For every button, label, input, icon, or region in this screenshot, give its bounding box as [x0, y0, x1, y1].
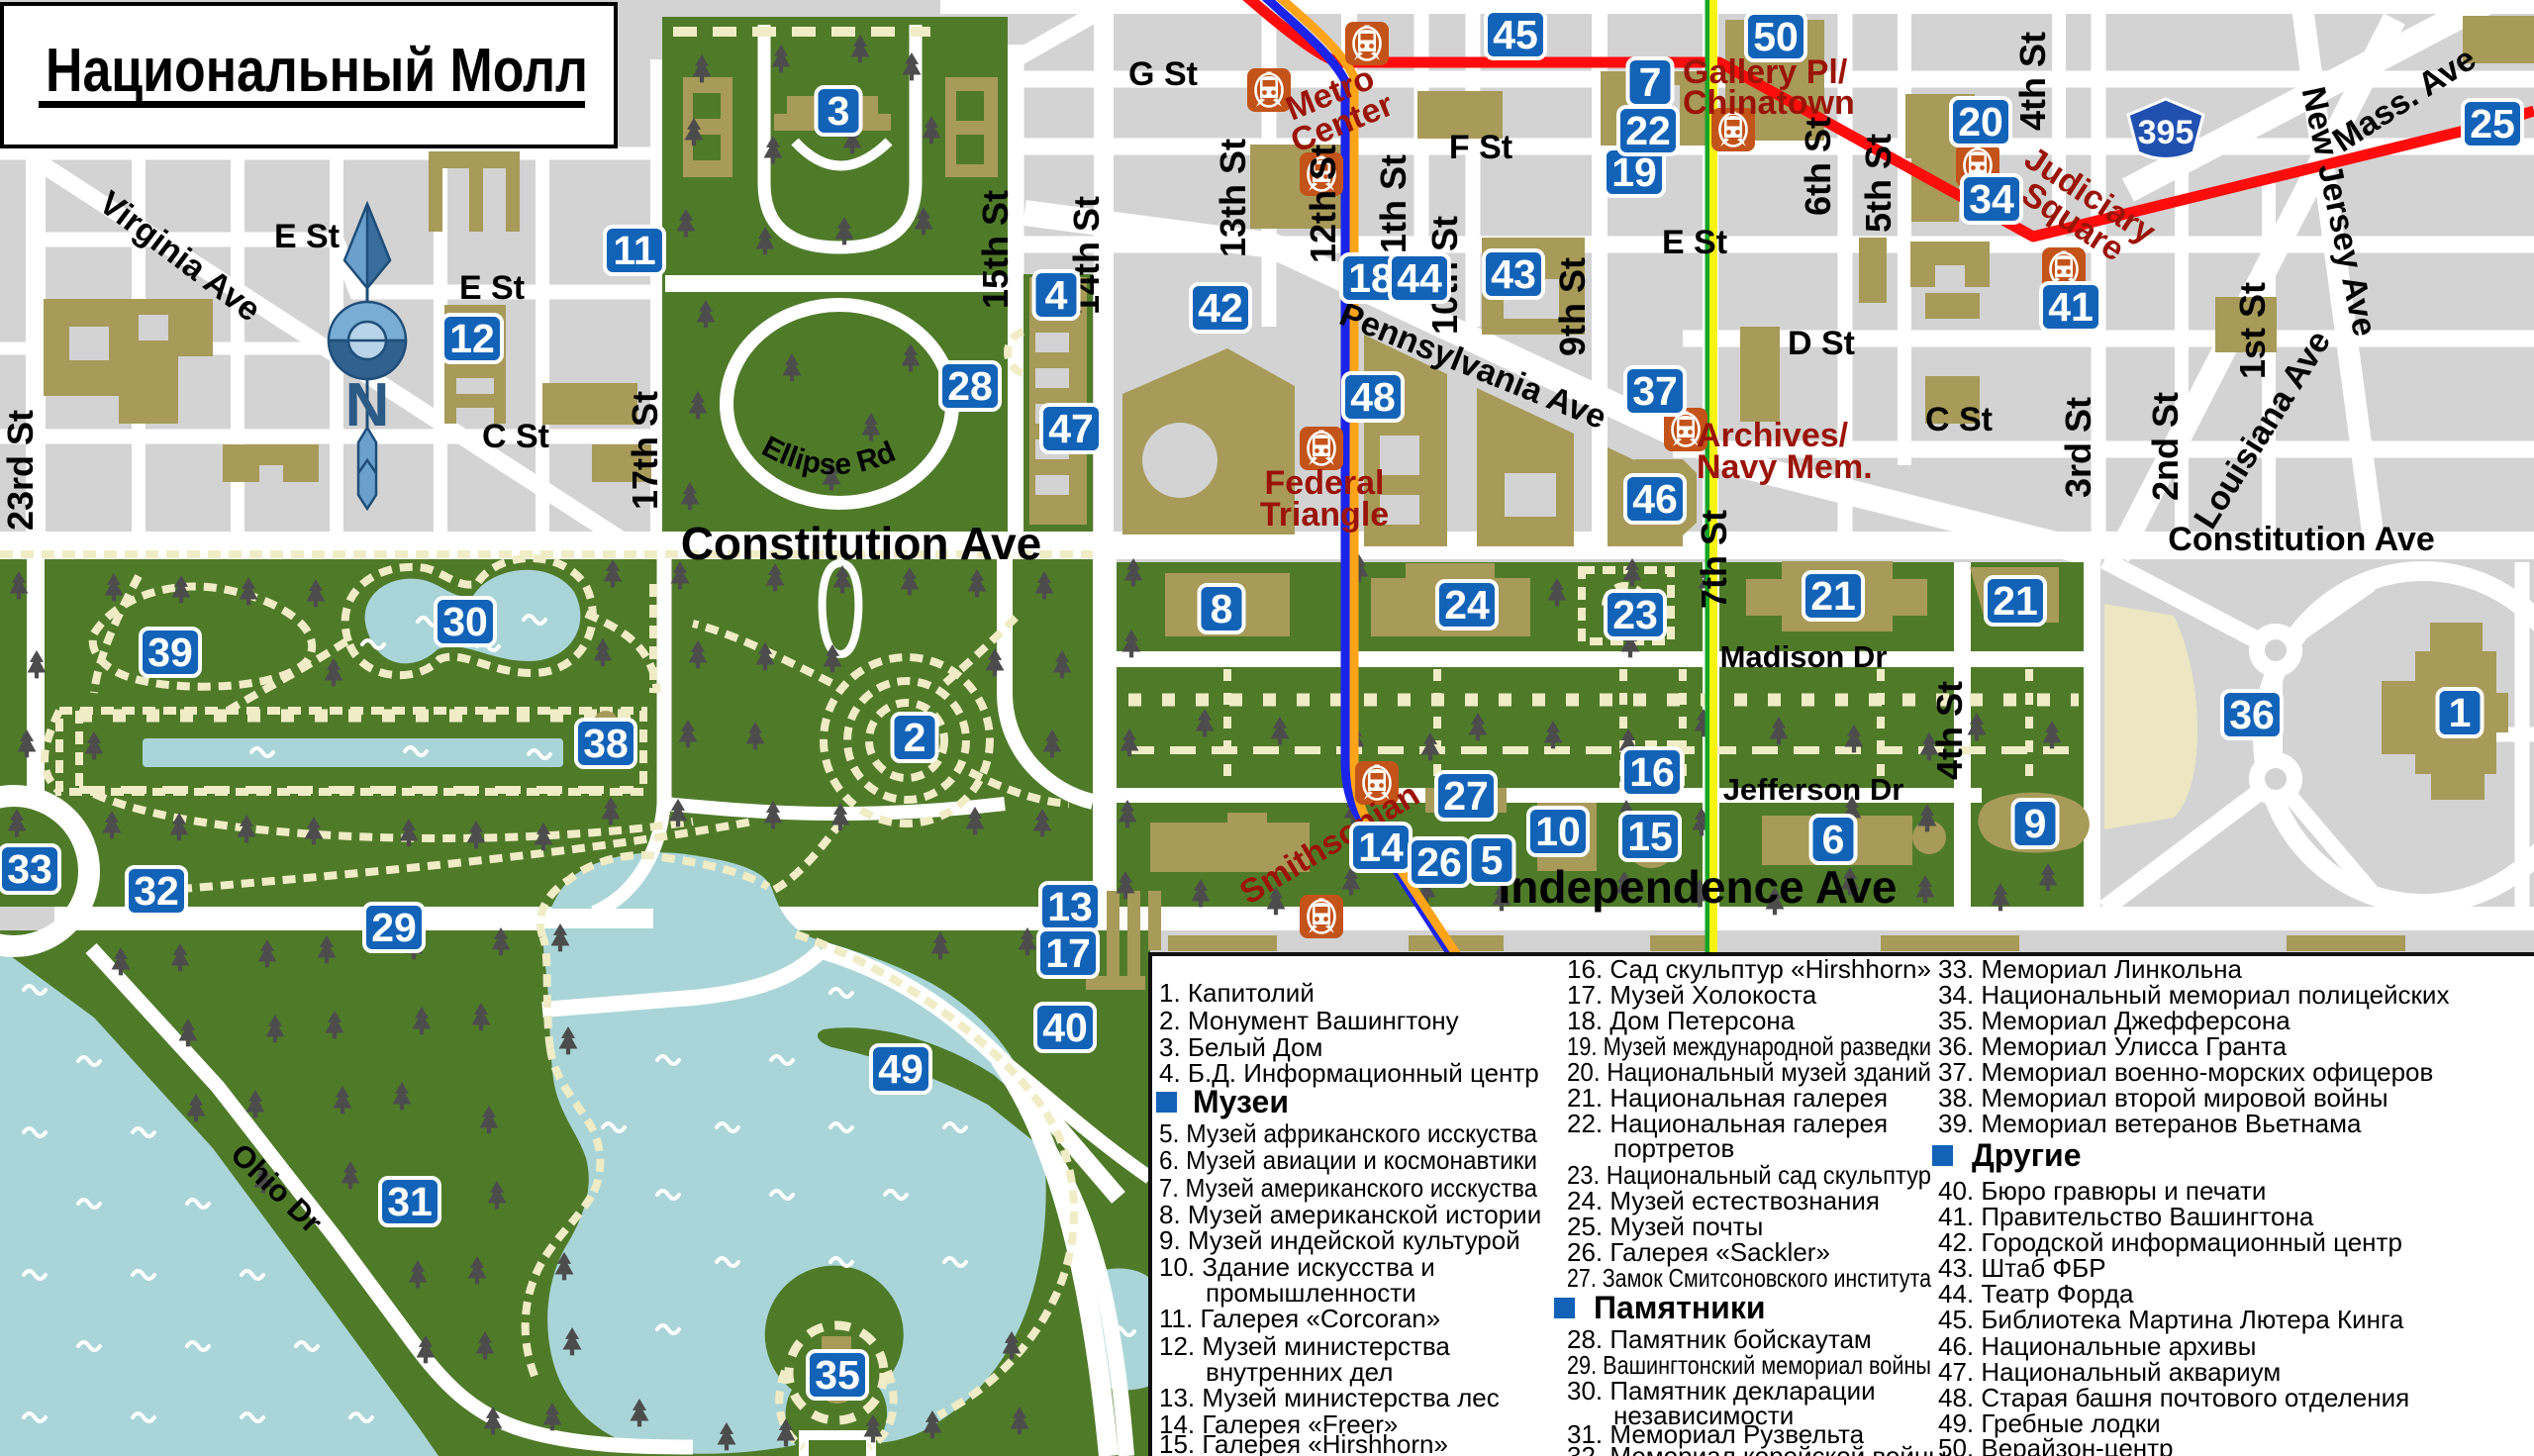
svg-text:Chinatown: Chinatown: [1683, 84, 1855, 122]
svg-text:7: 7: [1639, 59, 1662, 105]
svg-text:6. Музей авиации и космонавтик: 6. Музей авиации и космонавтики: [1159, 1145, 1537, 1175]
svg-text:C St: C St: [1925, 401, 1993, 438]
svg-text:12th St: 12th St: [1303, 145, 1343, 263]
svg-text:Национальный Молл: Национальный Молл: [46, 37, 588, 105]
svg-text:Constitution Ave: Constitution Ave: [681, 518, 1042, 569]
svg-text:Памятники: Памятники: [1594, 1290, 1766, 1325]
svg-text:11. Галерея «Corcoran»: 11. Галерея «Corcoran»: [1159, 1304, 1440, 1333]
svg-text:G St: G St: [1128, 55, 1198, 93]
svg-text:9: 9: [2024, 801, 2047, 846]
svg-text:N: N: [345, 371, 390, 439]
svg-text:22: 22: [1625, 108, 1671, 153]
svg-text:39: 39: [147, 630, 193, 675]
svg-text:15th St: 15th St: [975, 190, 1016, 309]
svg-text:28: 28: [947, 363, 993, 409]
svg-text:2. Монумент Вашингтону: 2. Монумент Вашингтону: [1159, 1006, 1459, 1035]
svg-text:4: 4: [1045, 272, 1068, 318]
svg-text:17: 17: [1045, 930, 1091, 976]
svg-text:E St: E St: [1662, 224, 1727, 261]
svg-text:5: 5: [1481, 837, 1504, 883]
svg-text:4th St: 4th St: [2012, 32, 2053, 131]
svg-text:32. Мемориал корейской войны: 32. Мемориал корейской войны: [1567, 1441, 1947, 1456]
svg-text:6th St: 6th St: [1798, 117, 1838, 216]
svg-text:Navy Mem.: Navy Mem.: [1697, 448, 1873, 486]
svg-text:48: 48: [1350, 374, 1396, 420]
svg-text:40: 40: [1042, 1005, 1088, 1050]
svg-text:50: 50: [1753, 14, 1799, 59]
svg-text:43: 43: [1491, 251, 1536, 297]
svg-text:Madison Dr: Madison Dr: [1720, 639, 1888, 674]
svg-text:27. Замок Смитсоновского инсти: 27. Замок Смитсоновского института: [1567, 1263, 1931, 1293]
svg-text:23rd St: 23rd St: [0, 410, 41, 531]
svg-text:12: 12: [449, 316, 495, 361]
svg-text:16: 16: [1629, 749, 1675, 795]
svg-text:20: 20: [1958, 99, 2003, 145]
svg-text:17th St: 17th St: [625, 391, 665, 510]
svg-text:9. Музей индейской культурой: 9. Музей индейской культурой: [1159, 1225, 1520, 1255]
svg-text:15: 15: [1627, 814, 1673, 859]
svg-text:1st St: 1st St: [2232, 282, 2273, 379]
svg-text:42: 42: [1198, 285, 1243, 331]
svg-text:39. Мемориал ветеранов Вьетнам: 39. Мемориал ветеранов Вьетнама: [1938, 1109, 2362, 1138]
svg-text:4th St: 4th St: [1929, 681, 1970, 780]
svg-text:Triangle: Triangle: [1260, 496, 1389, 534]
svg-text:3: 3: [828, 88, 850, 134]
svg-text:38: 38: [583, 721, 629, 766]
svg-text:26: 26: [1416, 839, 1462, 885]
svg-text:46: 46: [1632, 476, 1678, 522]
svg-text:33: 33: [7, 846, 52, 892]
svg-text:2: 2: [904, 715, 926, 760]
svg-text:395: 395: [2138, 114, 2194, 151]
svg-text:Другие: Другие: [1972, 1137, 2082, 1173]
svg-text:34: 34: [1969, 176, 2014, 222]
svg-text:9th St: 9th St: [1552, 257, 1593, 356]
svg-text:13th St: 13th St: [1213, 139, 1253, 257]
svg-text:25: 25: [2470, 101, 2515, 146]
svg-text:14: 14: [1358, 825, 1404, 870]
svg-text:1: 1: [2449, 690, 2472, 735]
svg-text:24: 24: [1444, 582, 1490, 628]
svg-text:15. Галерея «Hirshhorn»: 15. Галерея «Hirshhorn»: [1159, 1429, 1448, 1456]
svg-text:21: 21: [1810, 573, 1856, 619]
svg-text:29: 29: [371, 905, 417, 950]
svg-text:8: 8: [1211, 586, 1233, 631]
svg-text:D St: D St: [1788, 325, 1855, 362]
svg-text:11: 11: [613, 228, 655, 273]
svg-text:13: 13: [1047, 884, 1093, 929]
svg-text:E St: E St: [274, 218, 340, 255]
svg-text:7th St: 7th St: [1694, 510, 1734, 609]
svg-text:Музеи: Музеи: [1193, 1084, 1289, 1119]
svg-text:45. Библиотека Мартина Лютера: 45. Библиотека Мартина Лютера Кинга: [1938, 1305, 2404, 1334]
svg-text:41: 41: [2048, 284, 2094, 330]
svg-text:49: 49: [878, 1046, 924, 1092]
svg-text:1. Капитолий: 1. Капитолий: [1159, 978, 1315, 1008]
svg-text:27: 27: [1443, 773, 1489, 819]
svg-text:31: 31: [387, 1179, 433, 1224]
svg-text:6: 6: [1822, 817, 1845, 862]
svg-text:50. Верайзон-центр: 50. Верайзон-центр: [1938, 1433, 2174, 1456]
svg-text:7. Музей американского исскуст: 7. Музей американского исскуства: [1159, 1173, 1537, 1203]
svg-text:44: 44: [1397, 255, 1442, 301]
svg-text:3rd St: 3rd St: [2058, 397, 2098, 498]
svg-text:10: 10: [1535, 809, 1581, 854]
svg-text:23: 23: [1612, 592, 1658, 637]
svg-text:Jefferson Dr: Jefferson Dr: [1723, 772, 1904, 807]
svg-text:35: 35: [815, 1352, 860, 1398]
svg-text:13. Музей министерства лес: 13. Музей министерства лес: [1159, 1383, 1500, 1412]
svg-text:45: 45: [1493, 12, 1538, 57]
svg-text:2nd St: 2nd St: [2145, 392, 2186, 501]
svg-text:портретов: портретов: [1613, 1133, 1734, 1163]
svg-text:18: 18: [1348, 255, 1394, 301]
svg-text:Independence Ave: Independence Ave: [1498, 861, 1897, 913]
svg-text:30: 30: [442, 599, 488, 644]
svg-text:21: 21: [1993, 578, 2038, 624]
svg-text:36: 36: [2229, 692, 2275, 737]
svg-text:C St: C St: [482, 418, 549, 455]
svg-text:47: 47: [1048, 406, 1094, 451]
svg-text:F St: F St: [1449, 129, 1512, 166]
svg-text:5. Музей африканского исскуств: 5. Музей африканского исскуства: [1159, 1118, 1538, 1148]
svg-text:5th St: 5th St: [1858, 134, 1899, 233]
svg-text:37: 37: [1632, 368, 1678, 414]
svg-text:32: 32: [134, 868, 179, 914]
svg-text:E St: E St: [459, 269, 525, 307]
